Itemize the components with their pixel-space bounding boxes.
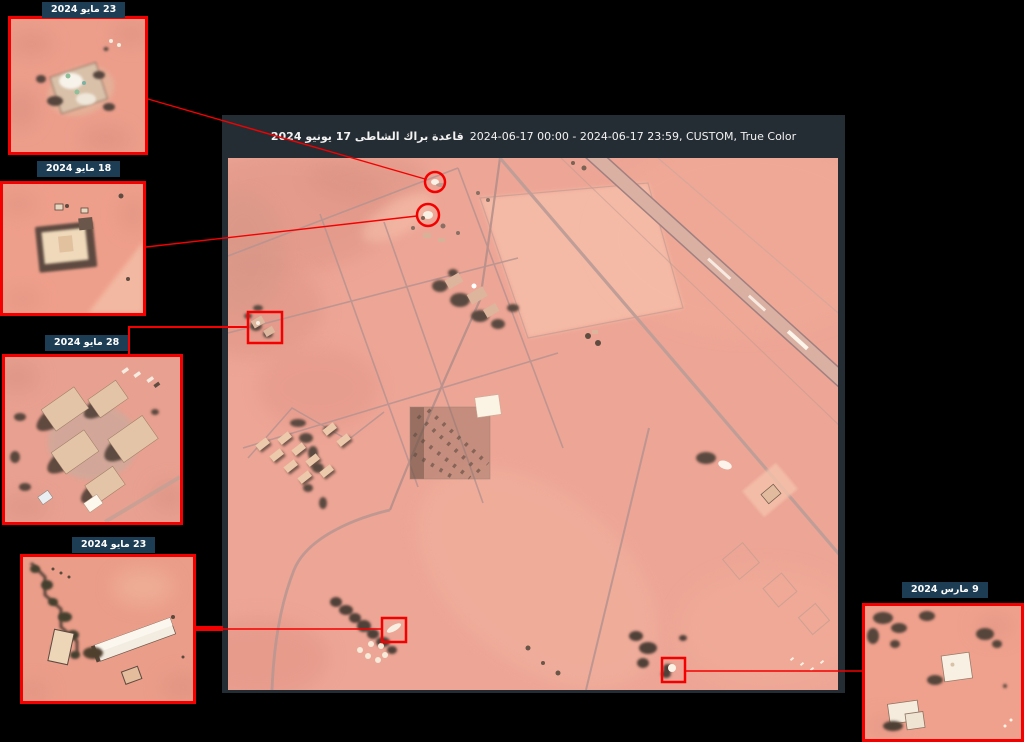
title-daterange: 2024-06-17 00:00 - 2024-06-17 23:59, CUS… <box>470 130 796 143</box>
main-image-title: قاعدة براك الشاطى 17 يونيو 2024 2024-06-… <box>222 115 845 158</box>
inset-4-date-label: 23 مايو 2024 <box>72 537 155 553</box>
inset-2-satellite-scene <box>3 184 143 313</box>
inset-1-date-label: 23 مايو 2024 <box>42 2 125 18</box>
inset-5-image <box>862 603 1024 742</box>
title-arabic: قاعدة براك الشاطى 17 يونيو 2024 <box>271 130 464 143</box>
inset-1-image <box>8 16 148 155</box>
inset-2-date-label: 18 مايو 2024 <box>37 161 120 177</box>
inset-1-satellite-scene <box>11 19 145 152</box>
inset-3-satellite-scene <box>5 357 180 522</box>
inset-5-satellite-scene <box>865 606 1021 739</box>
main-image-panel: قاعدة براك الشاطى 17 يونيو 2024 2024-06-… <box>222 115 845 693</box>
main-satellite-scene <box>228 158 838 690</box>
building-shadow <box>83 647 103 659</box>
inset-3-image <box>2 354 183 525</box>
inset-4-image <box>20 554 196 704</box>
main-satellite-image <box>228 158 838 690</box>
inset-2-image <box>0 181 146 316</box>
satellite-report-canvas: 23 مايو 2024 <box>0 0 1024 742</box>
connector-line-thick-segment <box>196 626 223 631</box>
building-shadow <box>927 675 943 685</box>
inset-5-date-label: 9 مارس 2024 <box>902 582 988 598</box>
center-building <box>941 652 972 682</box>
white-hangar <box>475 394 502 417</box>
building-shadow-2 <box>883 721 903 731</box>
light-patch <box>113 569 173 605</box>
inset-4-satellite-scene <box>23 557 193 701</box>
dark-grove <box>410 407 490 479</box>
inset-3-date-label: 28 مايو 2024 <box>45 335 128 351</box>
